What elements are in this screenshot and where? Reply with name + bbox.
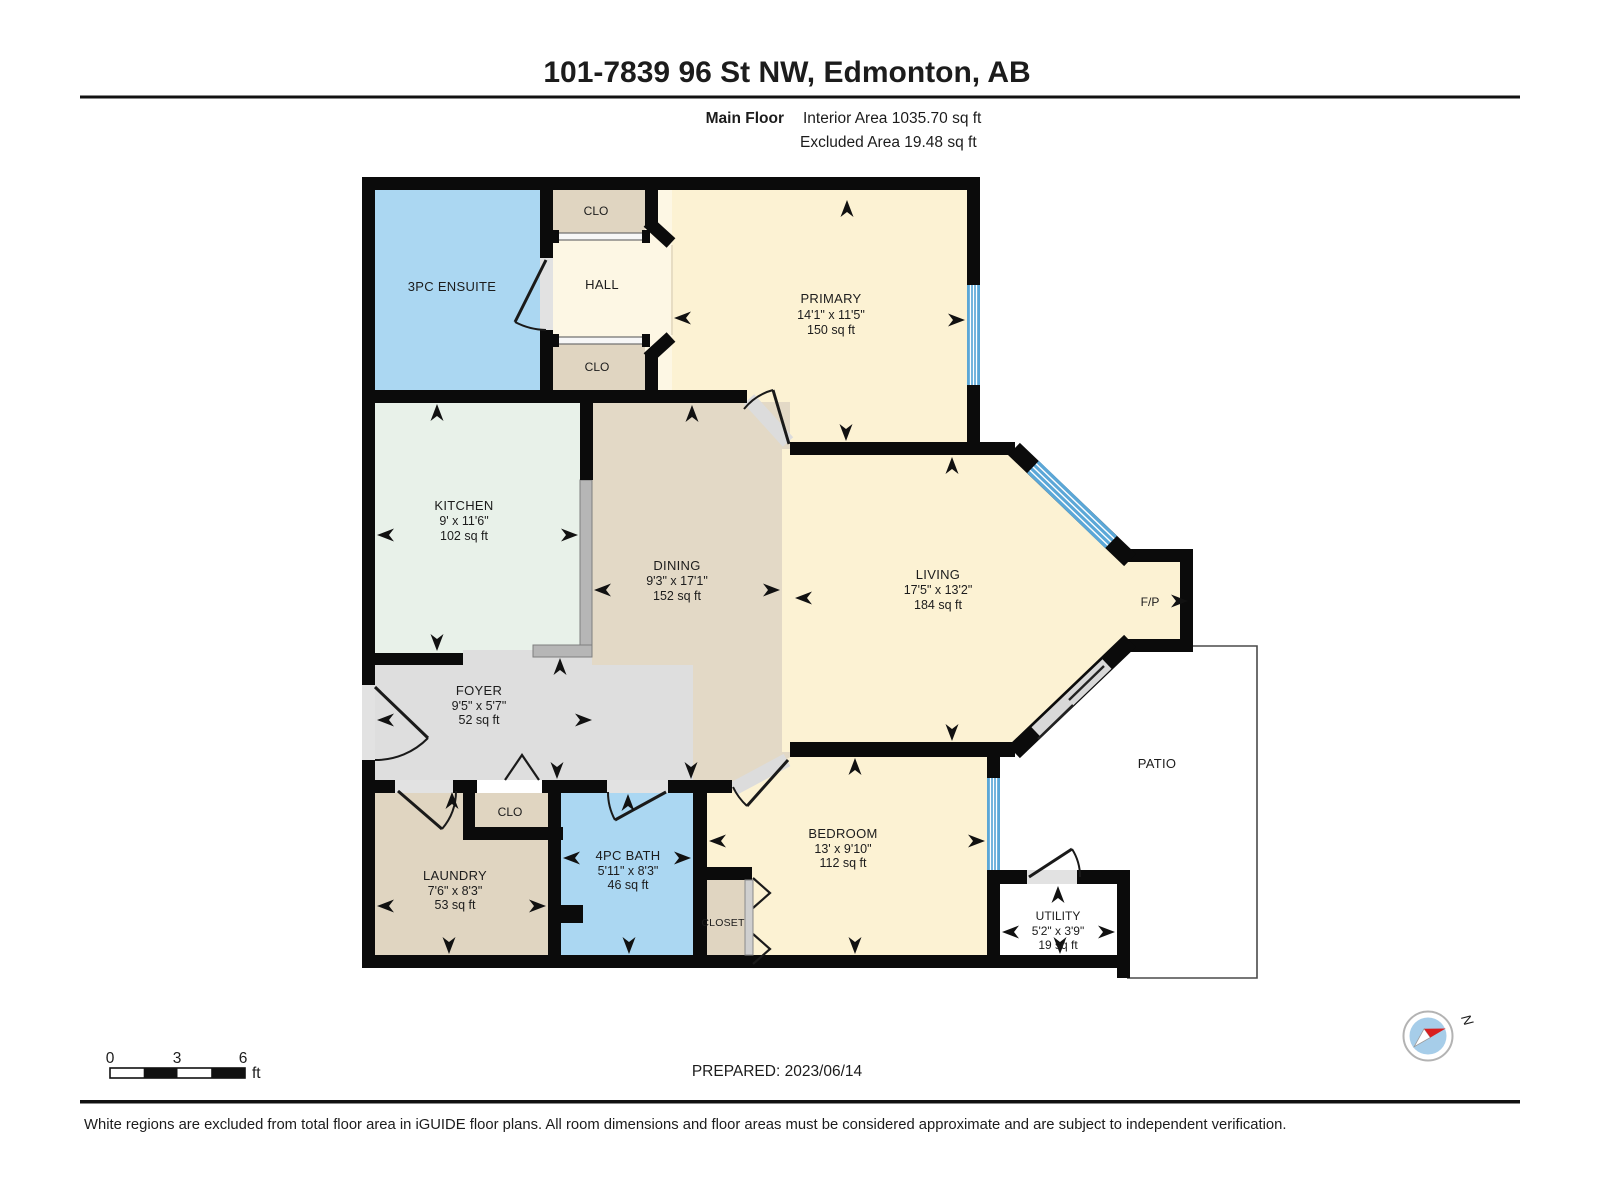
svg-text:46 sq ft: 46 sq ft [608, 878, 650, 892]
patio-label: PATIO [1138, 756, 1177, 771]
compass-icon: N [1404, 1012, 1478, 1061]
dining-label: DINING [653, 558, 700, 573]
primary-label: PRIMARY [800, 291, 861, 306]
foyer-floor [375, 665, 693, 780]
svg-text:52 sq ft: 52 sq ft [459, 713, 501, 727]
svg-text:14'1" x 11'5": 14'1" x 11'5" [797, 308, 865, 322]
floor-label: Main Floor [706, 110, 784, 127]
bedroom-closet-door-panel [745, 880, 753, 955]
svg-text:102 sq ft: 102 sq ft [440, 529, 488, 543]
svg-text:152 sq ft: 152 sq ft [653, 589, 701, 603]
scale-bar: 0 3 6 ft [106, 1050, 262, 1082]
hall-label: HALL [585, 277, 619, 292]
clo-foyer-label: CLO [498, 805, 523, 819]
svg-text:53 sq ft: 53 sq ft [435, 898, 477, 912]
fireplace-label: F/P [1141, 595, 1160, 609]
excluded-area-label: Excluded Area 19.48 sq ft [800, 134, 977, 151]
laundry-label: LAUNDRY [423, 868, 487, 883]
utility-label: UTILITY [1036, 909, 1081, 923]
floor-plan-page: 101-7839 96 St NW, Edmonton, AB Main Flo… [0, 0, 1600, 1200]
kitchen-label: KITCHEN [434, 498, 493, 513]
scale-mid: 3 [173, 1050, 182, 1067]
svg-text:184 sq ft: 184 sq ft [914, 598, 962, 612]
room-floors [375, 190, 1181, 956]
scale-start: 0 [106, 1050, 115, 1067]
footer-rule [80, 1100, 1520, 1104]
svg-text:112 sq ft: 112 sq ft [819, 856, 867, 870]
prepared-date: PREPARED: 2023/06/14 [692, 1063, 863, 1080]
svg-text:9' x 11'6": 9' x 11'6" [439, 514, 488, 528]
compass-north-label: N [1458, 1012, 1477, 1029]
svg-text:7'6" x 8'3": 7'6" x 8'3" [428, 884, 483, 898]
closet-label: CLOSET [701, 917, 745, 929]
patio-outline [1127, 646, 1257, 978]
header-rule [80, 96, 1520, 99]
clo-bottom-label: CLO [585, 360, 610, 374]
svg-text:13' x 9'10": 13' x 9'10" [814, 842, 871, 856]
floor-plan-canvas: 101-7839 96 St NW, Edmonton, AB Main Flo… [0, 0, 1600, 1200]
svg-text:17'5" x 13'2": 17'5" x 13'2" [904, 583, 973, 597]
ensuite-label: 3PC ENSUITE [408, 279, 497, 294]
interior-area-label: Interior Area 1035.70 sq ft [803, 110, 982, 127]
svg-text:9'5" x 5'7": 9'5" x 5'7" [452, 699, 507, 713]
svg-text:5'11" x 8'3": 5'11" x 8'3" [598, 864, 659, 878]
svg-text:5'2" x 3'9": 5'2" x 3'9" [1032, 924, 1084, 938]
kitchen-floor [375, 403, 580, 653]
bedroom-label: BEDROOM [808, 826, 877, 841]
disclaimer-text: White regions are excluded from total fl… [84, 1117, 1286, 1133]
clo-top-label: CLO [584, 204, 609, 218]
svg-text:19 sq ft: 19 sq ft [1038, 938, 1078, 952]
foyer-label: FOYER [456, 683, 502, 698]
scale-unit: ft [252, 1065, 261, 1082]
living-label: LIVING [916, 567, 960, 582]
svg-text:150 sq ft: 150 sq ft [807, 323, 855, 337]
scale-end: 6 [239, 1050, 248, 1067]
page-title: 101-7839 96 St NW, Edmonton, AB [543, 56, 1030, 89]
svg-text:9'3" x 17'1": 9'3" x 17'1" [646, 574, 708, 588]
bath-label: 4PC BATH [595, 848, 660, 863]
